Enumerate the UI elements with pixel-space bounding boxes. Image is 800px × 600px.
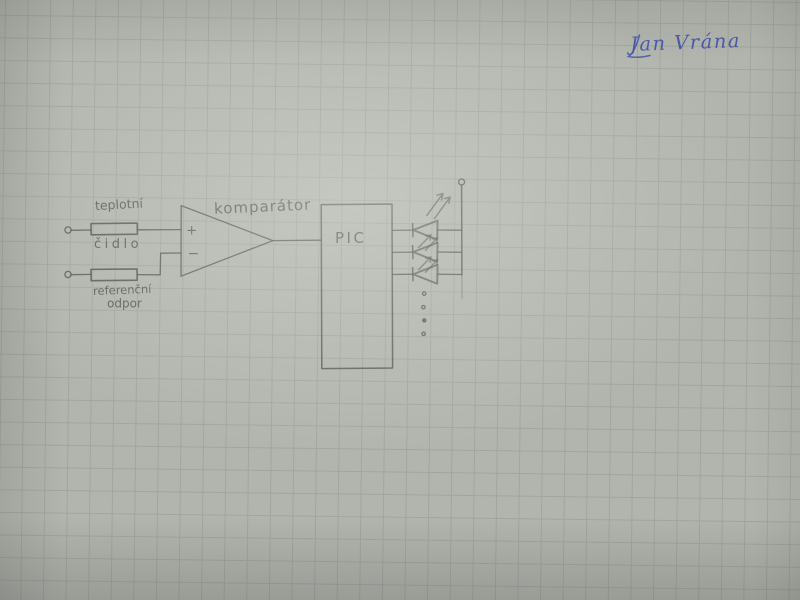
graph-paper-photo: teplotní čidlo referenční odpor + − komp…	[0, 0, 800, 600]
reference-label-bottom: odpor	[107, 297, 142, 311]
signature: Jan Vrána	[626, 29, 742, 57]
led-symbol-1	[393, 221, 462, 240]
input-terminal-top	[65, 227, 71, 233]
comparator-label: komparátor	[214, 196, 312, 218]
reference-resistor: referenční odpor	[71, 253, 181, 311]
comparator-plus-sign: +	[186, 223, 197, 239]
pic-label: PIC	[335, 229, 366, 247]
signature-text: Jan Vrána	[626, 29, 742, 56]
wire-reference-to-comparator	[137, 253, 181, 275]
reference-resistor-body	[91, 269, 137, 281]
sensor-resistor-body	[91, 223, 137, 235]
pic-microcontroller: PIC	[321, 204, 392, 369]
led-symbol-2	[393, 243, 462, 262]
comparator: + − komparátor	[181, 196, 321, 277]
temperature-sensor-resistor: teplotní čidlo	[71, 196, 181, 252]
input-terminal-bottom	[65, 271, 71, 277]
sensor-label-bottom: čidlo	[94, 237, 142, 252]
sensor-label-top: teplotní	[95, 196, 144, 214]
supply-terminal	[459, 179, 465, 185]
led-supply-bus	[459, 179, 465, 299]
continuation-dots	[422, 292, 426, 336]
led-array	[393, 179, 465, 335]
comparator-minus-sign: −	[188, 246, 200, 262]
circuit-schematic: teplotní čidlo referenční odpor + − komp…	[0, 0, 800, 600]
led-symbol-3	[393, 265, 462, 284]
input-terminals	[65, 227, 71, 278]
led-emission-arrows	[419, 194, 451, 273]
